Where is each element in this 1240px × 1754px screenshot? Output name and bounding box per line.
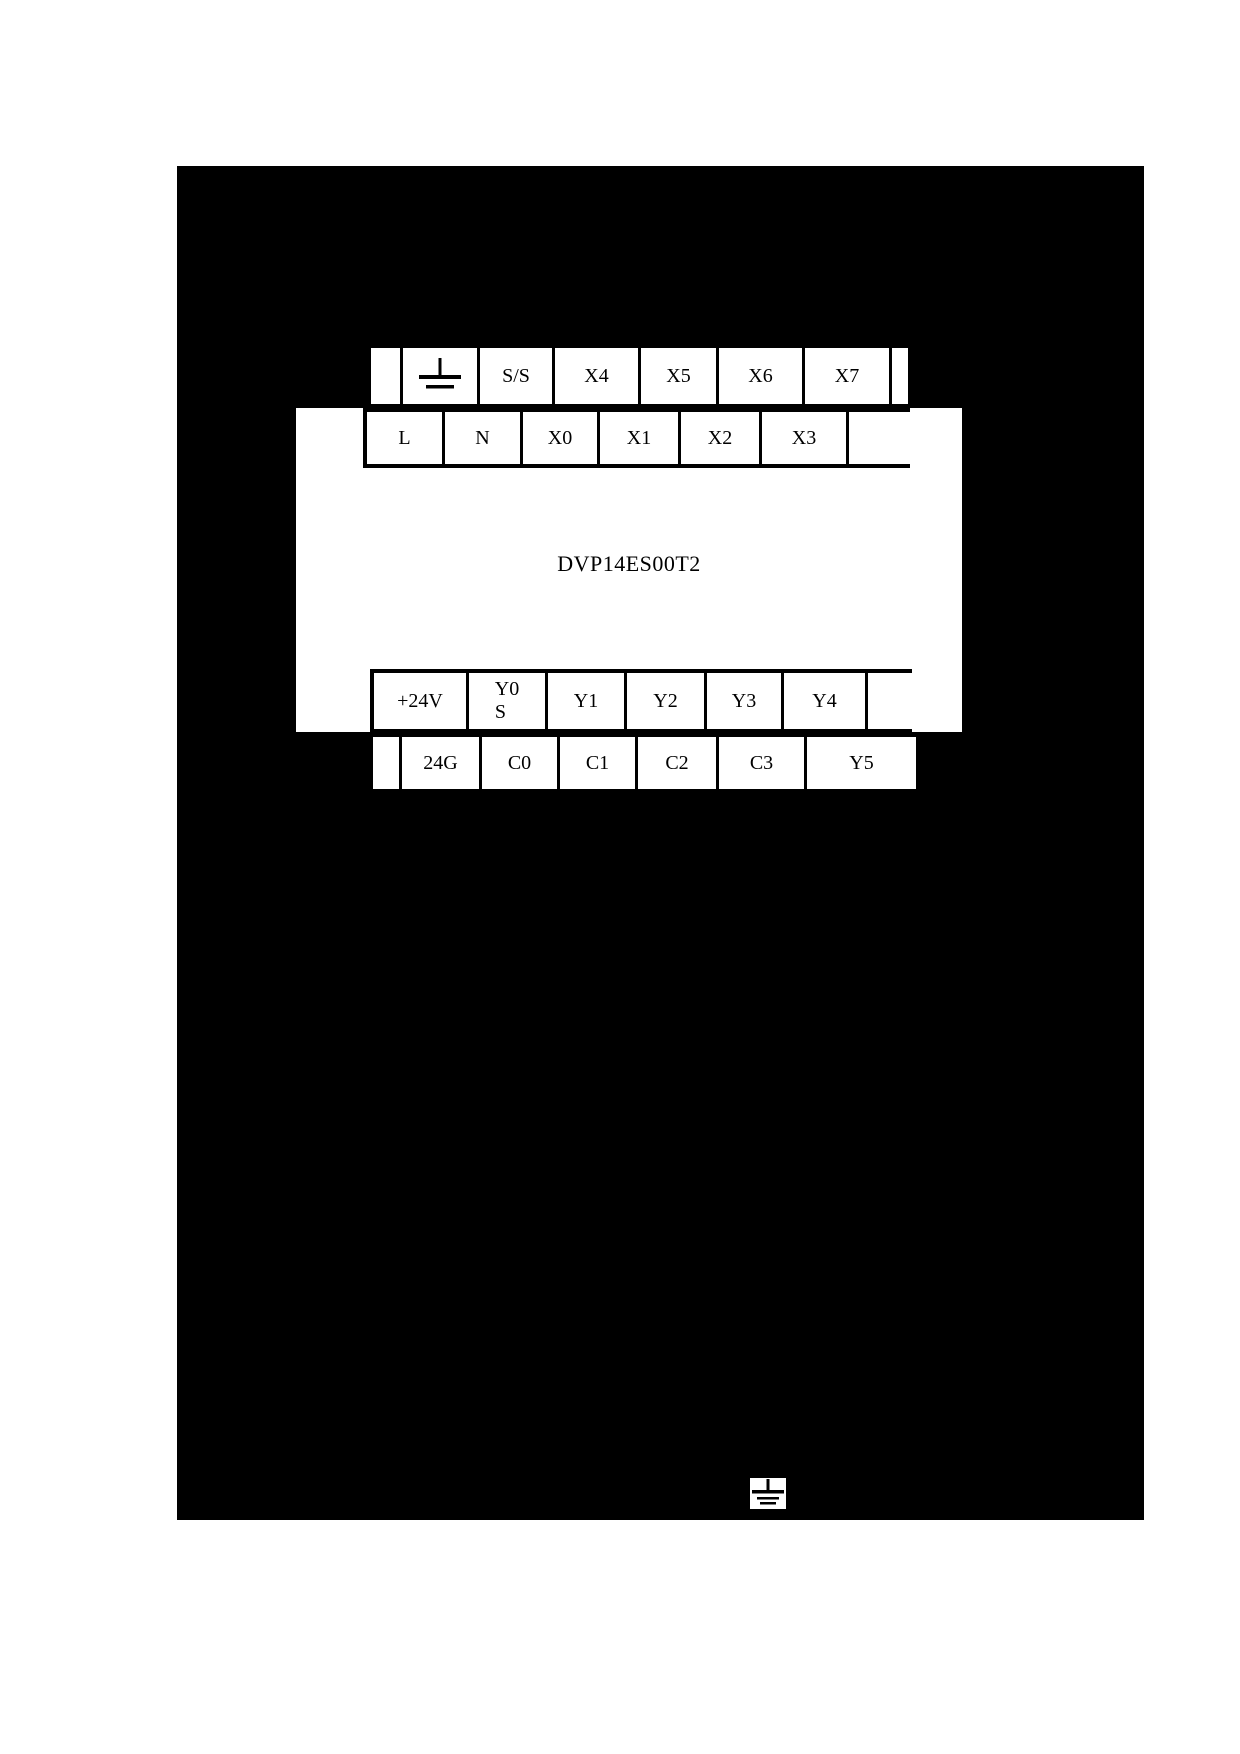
terminal-y2: Y2 xyxy=(624,673,704,729)
terminal-y0-label: Y0 xyxy=(495,679,519,700)
terminal-l: L xyxy=(367,412,442,464)
terminal-x0: X0 xyxy=(520,412,597,464)
terminal-24v: +24V xyxy=(374,673,466,729)
terminal-x4: X4 xyxy=(552,348,638,404)
corner-ground-box xyxy=(750,1478,786,1509)
terminal-c0: C0 xyxy=(479,737,557,789)
diagram-black-background: DVP14ES00T2 S/S X4 X5 X6 X7 L N X0 X1 xyxy=(177,166,1144,1520)
terminal-y5: Y5 xyxy=(804,737,916,789)
terminal-ss: S/S xyxy=(477,348,552,404)
terminal-blank xyxy=(846,412,914,464)
terminal-blank xyxy=(889,348,908,404)
ground-icon xyxy=(750,1478,786,1509)
terminal-y1: Y1 xyxy=(545,673,624,729)
terminal-x1: X1 xyxy=(597,412,678,464)
terminal-x7: X7 xyxy=(802,348,889,404)
terminal-row-bottom-outer: 24G C0 C1 C2 C3 Y5 xyxy=(369,733,912,793)
terminal-y0-sub-label: S xyxy=(495,702,506,723)
terminal-x6: X6 xyxy=(716,348,802,404)
terminal-blank xyxy=(373,737,399,789)
terminal-y0: Y0 S xyxy=(466,673,545,729)
terminal-row-top-outer: S/S X4 X5 X6 X7 xyxy=(367,344,904,408)
terminal-row-bottom-inner: +24V Y0 S Y1 Y2 Y3 Y4 xyxy=(370,669,912,733)
terminal-24g: 24G xyxy=(399,737,479,789)
terminal-c2: C2 xyxy=(635,737,716,789)
document-page: DVP14ES00T2 S/S X4 X5 X6 X7 L N X0 X1 xyxy=(0,0,1240,1754)
terminal-n: N xyxy=(442,412,520,464)
terminal-blank xyxy=(865,673,916,729)
terminal-y3: Y3 xyxy=(704,673,781,729)
terminal-x3: X3 xyxy=(759,412,846,464)
terminal-c1: C1 xyxy=(557,737,635,789)
terminal-y4: Y4 xyxy=(781,673,865,729)
ground-icon xyxy=(416,355,464,397)
terminal-x5: X5 xyxy=(638,348,716,404)
terminal-blank xyxy=(371,348,400,404)
terminal-ground xyxy=(400,348,477,404)
plc-model-label: DVP14ES00T2 xyxy=(296,551,962,579)
terminal-c3: C3 xyxy=(716,737,804,789)
terminal-x2: X2 xyxy=(678,412,759,464)
terminal-row-top-inner: L N X0 X1 X2 X3 xyxy=(363,408,910,468)
